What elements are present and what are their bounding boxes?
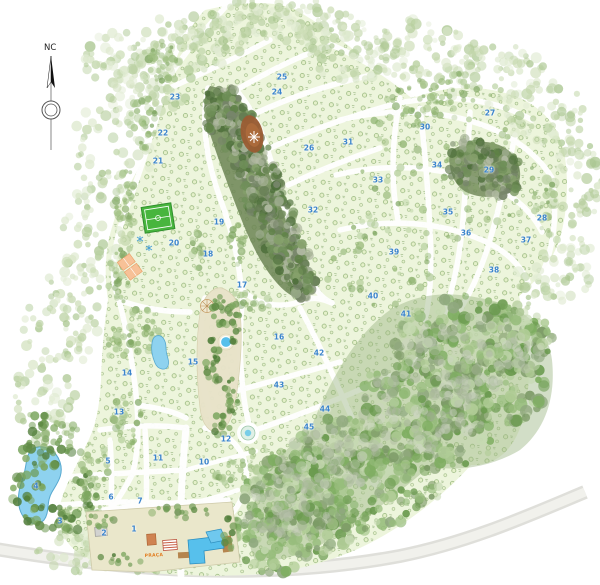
- plaza-label: PRAÇA: [145, 553, 164, 559]
- sports-field: [141, 203, 175, 233]
- club-building-striped: [163, 540, 178, 551]
- compass-label: NC: [44, 43, 56, 53]
- club-building-tan: [147, 534, 157, 546]
- map-canvas: NC: [0, 0, 600, 585]
- site-plan-map: NC 1234567101112131415161718192021222324…: [0, 0, 600, 585]
- roundabout: [239, 424, 257, 442]
